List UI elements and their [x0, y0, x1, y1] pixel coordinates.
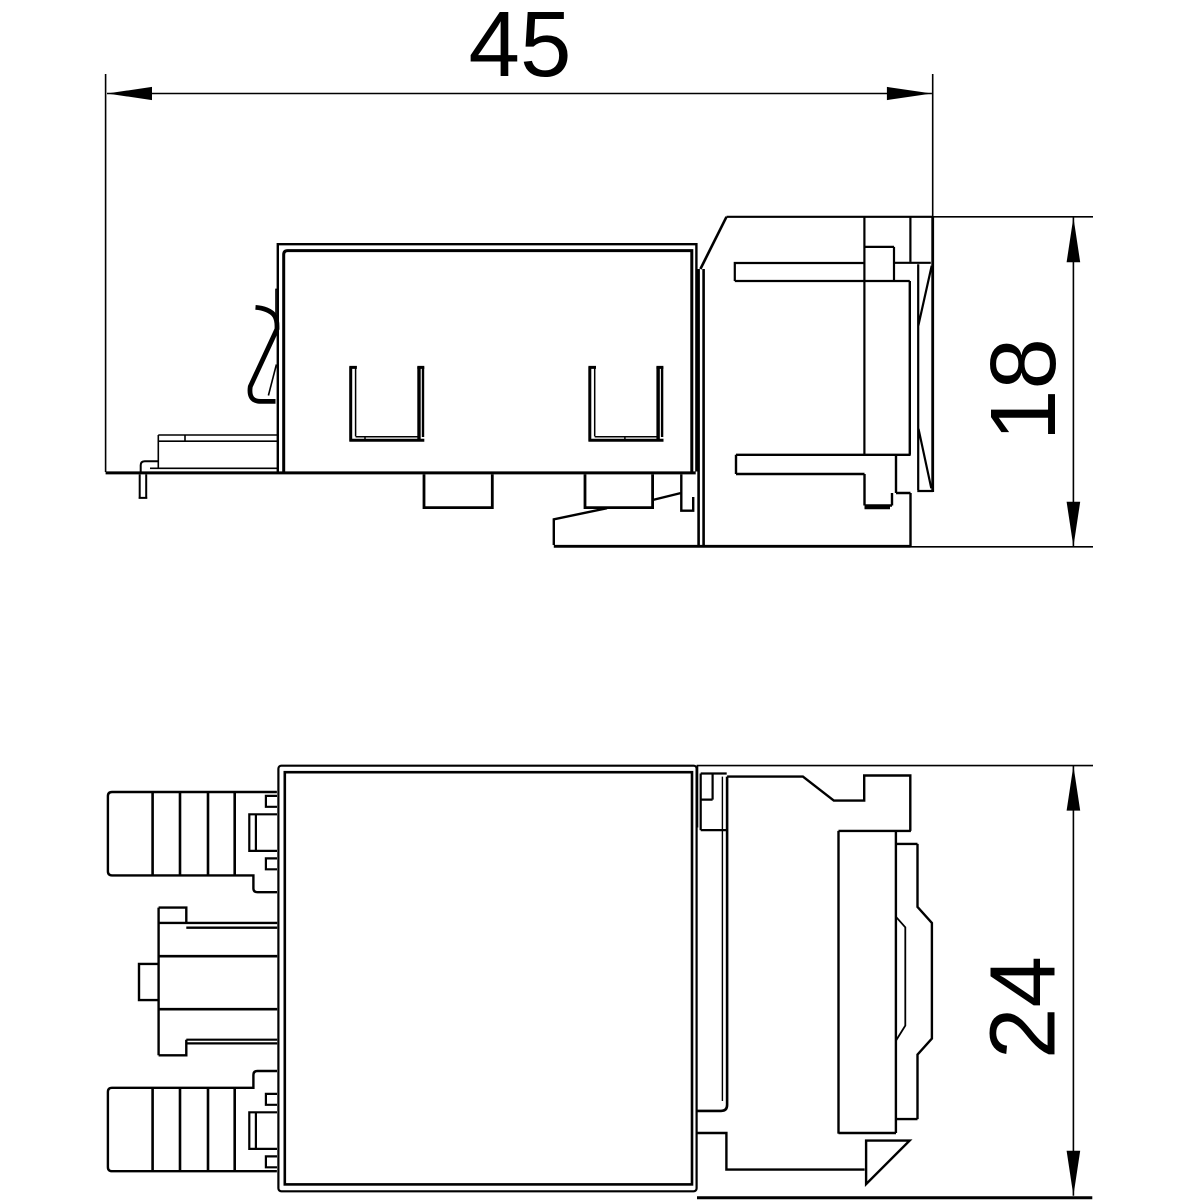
svg-text:24: 24 — [971, 956, 1075, 1059]
svg-text:18: 18 — [971, 338, 1075, 441]
svg-text:45: 45 — [469, 0, 572, 96]
